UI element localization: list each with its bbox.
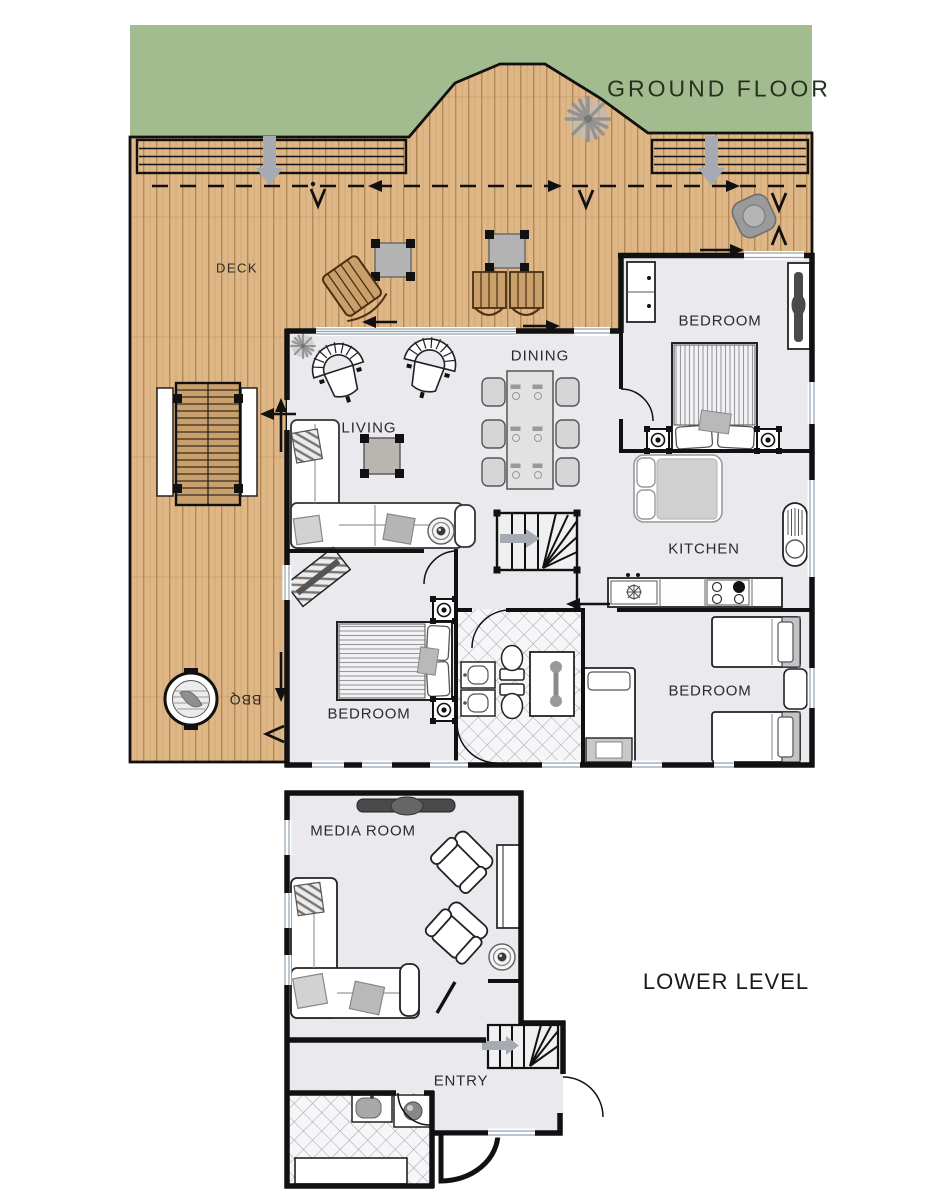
label-bedroom-left: BEDROOM [327, 707, 410, 722]
label-living: LIVING [341, 421, 396, 436]
kitchen-loveseat [634, 455, 722, 522]
kitchen-counter [608, 573, 782, 607]
toilet-icon-1 [500, 646, 524, 681]
picnic-table-icon [157, 383, 257, 505]
dining-table-icon [482, 371, 579, 489]
label-kitchen: KITCHEN [668, 542, 739, 557]
floor-plan-page: GROUND FLOOR DECK LIVING DINING BEDROOM … [0, 0, 951, 1200]
living-speaker-icon [428, 518, 454, 544]
laundry-sink [352, 1095, 392, 1122]
staircase-ground [494, 510, 581, 574]
media-speaker-icon [489, 944, 515, 970]
deck-lounger-2 [510, 272, 543, 315]
indoor-plant-icon [291, 334, 315, 358]
toilet-icon-2 [500, 684, 524, 719]
tree-icon [566, 97, 609, 140]
label-dining: DINING [511, 349, 570, 364]
staircase-lower [482, 1025, 558, 1068]
shower-tray-icon [295, 1158, 407, 1184]
entry-porch-step [441, 1133, 498, 1181]
nightstand-lamp-3 [430, 596, 458, 624]
deck-side-table-2 [485, 230, 529, 272]
deck-side-table-1 [371, 239, 415, 281]
window-bench-icon [784, 669, 807, 709]
floor-plan-svg [0, 0, 951, 1200]
deck-steps-right [652, 140, 808, 173]
label-lower-level: LOWER LEVEL [643, 971, 809, 993]
label-bedroom-right: BEDROOM [668, 684, 751, 699]
label-ground-floor: GROUND FLOOR [607, 78, 831, 101]
shower-icon [530, 652, 574, 716]
twin-bed-1 [712, 617, 800, 667]
label-media-room: MEDIA ROOM [310, 824, 416, 839]
twin-bed-2 [712, 712, 800, 762]
washing-machine-icon [394, 1095, 432, 1127]
ground-floor-area [130, 25, 817, 770]
nightstand-lamp-4 [430, 696, 458, 724]
deck-lounger-1 [473, 272, 506, 315]
label-bedroom-master: BEDROOM [678, 314, 761, 329]
lower-level-area [283, 791, 604, 1189]
label-bbq: BBQ [229, 693, 262, 707]
coffee-table-icon [360, 434, 404, 478]
kitchen-sink-unit [783, 503, 807, 566]
label-deck: DECK [216, 262, 258, 275]
single-bed-icon [583, 668, 635, 763]
label-entry: ENTRY [434, 1074, 489, 1089]
media-cabinet [497, 845, 520, 928]
tv-icon [357, 797, 455, 815]
